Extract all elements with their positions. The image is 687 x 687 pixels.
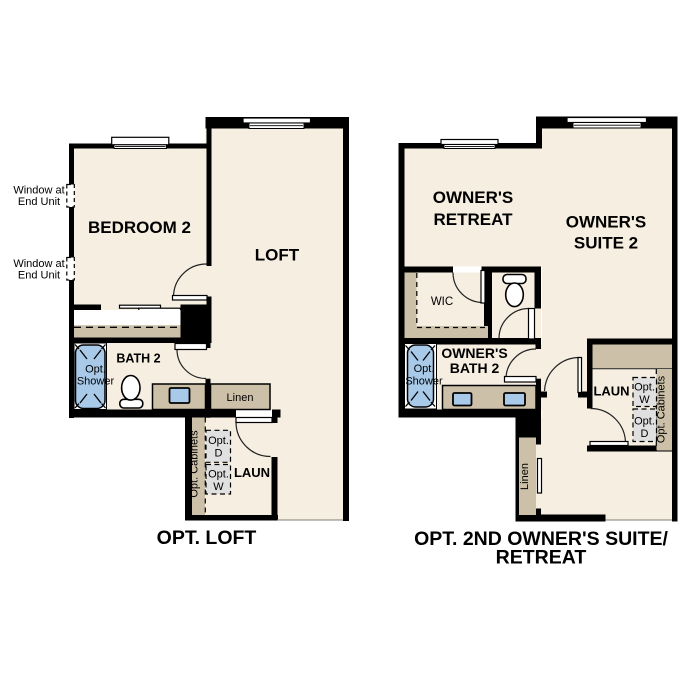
svg-text:BEDROOM 2: BEDROOM 2 <box>88 218 191 237</box>
svg-text:Linen: Linen <box>519 463 531 490</box>
svg-text:Opt.: Opt. <box>208 469 229 481</box>
svg-text:Opt.: Opt. <box>634 382 655 394</box>
svg-text:LOFT: LOFT <box>255 246 300 265</box>
svg-text:W: W <box>639 394 650 406</box>
svg-text:Shower: Shower <box>77 376 115 388</box>
svg-text:OWNER'S: OWNER'S <box>433 188 514 207</box>
svg-text:End Unit: End Unit <box>18 270 60 282</box>
svg-text:SUITE 2: SUITE 2 <box>574 234 638 253</box>
svg-text:RETREAT: RETREAT <box>496 547 587 569</box>
svg-text:Opt.: Opt. <box>208 435 229 447</box>
svg-text:Opt.: Opt. <box>634 416 655 428</box>
svg-text:D: D <box>641 428 649 440</box>
svg-text:OPT. LOFT: OPT. LOFT <box>157 527 257 549</box>
svg-text:BATH 2: BATH 2 <box>116 352 160 366</box>
svg-text:WIC: WIC <box>431 296 453 308</box>
svg-text:W: W <box>213 481 224 493</box>
svg-text:LAUN: LAUN <box>593 384 629 399</box>
svg-text:Opt.: Opt. <box>85 364 106 376</box>
svg-text:Window at: Window at <box>13 185 64 197</box>
svg-text:End Unit: End Unit <box>18 196 60 208</box>
svg-text:LAUN: LAUN <box>234 465 270 480</box>
svg-text:RETREAT: RETREAT <box>433 210 513 229</box>
svg-text:D: D <box>215 448 223 460</box>
svg-text:Shower: Shower <box>405 376 443 388</box>
svg-text:Window at: Window at <box>13 258 64 270</box>
svg-text:OWNER'S: OWNER'S <box>566 213 647 232</box>
svg-text:OWNER'S: OWNER'S <box>441 345 507 361</box>
svg-text:Opt.: Opt. <box>414 363 435 375</box>
svg-text:Opt. Cabinets: Opt. Cabinets <box>189 430 201 498</box>
svg-text:Linen: Linen <box>227 392 254 404</box>
svg-text:BATH 2: BATH 2 <box>450 360 500 376</box>
svg-text:Opt. Cabinets: Opt. Cabinets <box>656 375 668 443</box>
